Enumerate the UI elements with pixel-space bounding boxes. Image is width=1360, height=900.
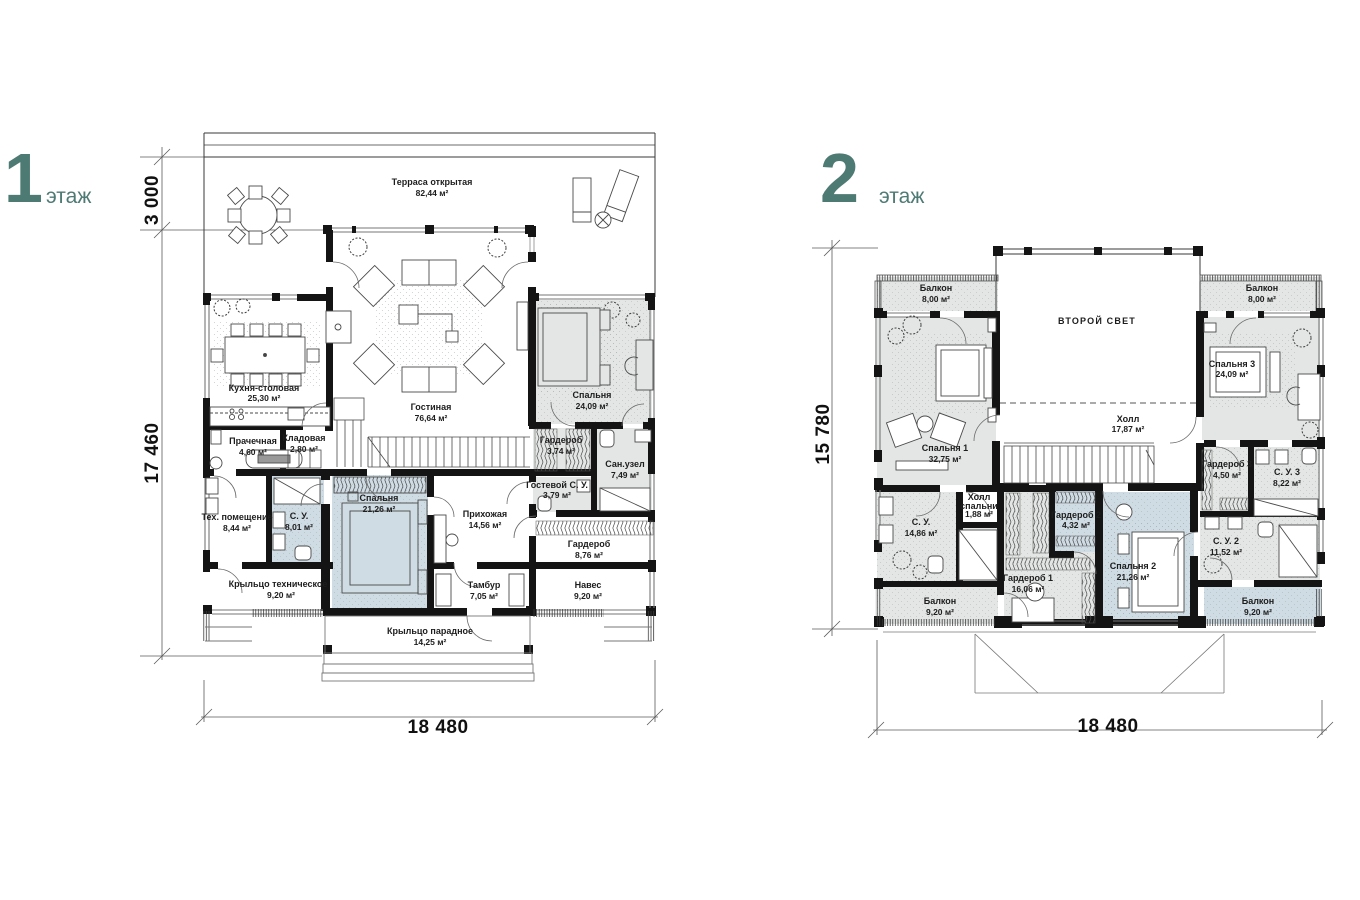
svg-text:Спальня 2: Спальня 2 — [1110, 561, 1156, 571]
svg-text:8,44 м²: 8,44 м² — [223, 523, 251, 533]
svg-text:Гардероб: Гардероб — [568, 539, 611, 549]
svg-text:11,52 м²: 11,52 м² — [1210, 547, 1242, 557]
svg-text:17,87 м²: 17,87 м² — [1112, 424, 1145, 434]
svg-text:Прихожая: Прихожая — [463, 509, 507, 519]
svg-text:9,20 м²: 9,20 м² — [1244, 607, 1272, 617]
svg-text:2: 2 — [820, 139, 859, 217]
svg-text:Балкон: Балкон — [920, 283, 953, 293]
svg-text:9,20 м²: 9,20 м² — [574, 591, 602, 601]
svg-text:1,88 м²: 1,88 м² — [965, 509, 993, 519]
svg-text:2,80 м²: 2,80 м² — [290, 444, 318, 454]
svg-text:14,56 м²: 14,56 м² — [469, 520, 502, 530]
svg-text:Гостиная: Гостиная — [411, 402, 452, 412]
svg-text:17 460: 17 460 — [142, 422, 163, 483]
svg-text:76,64 м²: 76,64 м² — [415, 413, 448, 423]
svg-text:8,01 м²: 8,01 м² — [285, 522, 313, 532]
svg-text:3,79 м²: 3,79 м² — [543, 490, 571, 500]
svg-text:7,05 м²: 7,05 м² — [470, 591, 498, 601]
svg-text:15 780: 15 780 — [813, 403, 834, 464]
svg-text:21,26 м²: 21,26 м² — [1117, 572, 1150, 582]
svg-text:этаж: этаж — [46, 185, 91, 208]
svg-text:8,76 м²: 8,76 м² — [575, 550, 603, 560]
svg-text:18 480: 18 480 — [1077, 716, 1138, 737]
svg-text:Навес: Навес — [575, 580, 602, 590]
svg-text:Гостевой С. У.: Гостевой С. У. — [526, 480, 588, 490]
svg-text:Гардероб 3: Гардероб 3 — [1202, 459, 1252, 469]
svg-text:Спальня: Спальня — [360, 493, 399, 503]
svg-text:1: 1 — [4, 139, 43, 217]
svg-text:Прачечная: Прачечная — [229, 436, 277, 446]
svg-text:24,09 м²: 24,09 м² — [1216, 369, 1249, 379]
svg-text:9,20 м²: 9,20 м² — [926, 607, 954, 617]
svg-text:16,06 м²: 16,06 м² — [1012, 584, 1045, 594]
svg-text:8,00 м²: 8,00 м² — [922, 294, 950, 304]
svg-text:Тех. помещение: Тех. помещение — [202, 512, 273, 522]
svg-text:С. У. 3: С. У. 3 — [1274, 467, 1300, 477]
svg-text:Балкон: Балкон — [924, 596, 957, 606]
svg-text:7,49 м²: 7,49 м² — [611, 470, 639, 480]
svg-text:21,26 м²: 21,26 м² — [363, 504, 396, 514]
svg-text:32,75 м²: 32,75 м² — [929, 454, 962, 464]
svg-text:С. У.: С. У. — [290, 511, 308, 521]
svg-text:3,74 м²: 3,74 м² — [547, 446, 575, 456]
svg-text:Балкон: Балкон — [1242, 596, 1275, 606]
svg-text:Тамбур: Тамбур — [468, 580, 501, 590]
svg-text:3 000: 3 000 — [142, 175, 163, 225]
svg-text:Спальня 3: Спальня 3 — [1209, 359, 1255, 369]
svg-text:82,44 м²: 82,44 м² — [416, 188, 449, 198]
svg-text:ВТОРОЙ СВЕТ: ВТОРОЙ СВЕТ — [1058, 315, 1136, 326]
svg-text:Гардероб 2: Гардероб 2 — [1051, 510, 1101, 520]
svg-text:25,30 м²: 25,30 м² — [248, 393, 281, 403]
svg-text:24,09 м²: 24,09 м² — [576, 401, 609, 411]
svg-text:14,86 м²: 14,86 м² — [905, 528, 938, 538]
svg-text:С. У. 2: С. У. 2 — [1213, 536, 1239, 546]
svg-text:Кухня-столовая: Кухня-столовая — [229, 383, 300, 393]
svg-text:этаж: этаж — [879, 185, 924, 208]
svg-text:18 480: 18 480 — [407, 717, 468, 738]
svg-text:Терраса открытая: Терраса открытая — [392, 177, 473, 187]
svg-text:4,50 м²: 4,50 м² — [1213, 470, 1241, 480]
svg-text:С. У.: С. У. — [912, 517, 930, 527]
svg-text:4,60 м²: 4,60 м² — [239, 447, 267, 457]
svg-text:Холл: Холл — [1117, 414, 1140, 424]
svg-text:4,32 м²: 4,32 м² — [1062, 520, 1090, 530]
svg-text:Кладовая: Кладовая — [282, 433, 325, 443]
svg-text:9,20 м²: 9,20 м² — [267, 590, 295, 600]
svg-text:Сан.узел: Сан.узел — [605, 459, 645, 469]
svg-text:14,25 м²: 14,25 м² — [414, 637, 447, 647]
svg-text:8,22 м²: 8,22 м² — [1273, 478, 1301, 488]
svg-text:Крыльцо парадное: Крыльцо парадное — [387, 626, 473, 636]
svg-text:Балкон: Балкон — [1246, 283, 1279, 293]
svg-text:Спальня 1: Спальня 1 — [922, 443, 968, 453]
svg-text:Гардероб: Гардероб — [540, 435, 583, 445]
svg-text:Спальня: Спальня — [573, 390, 612, 400]
svg-text:Гардероб 1: Гардероб 1 — [1003, 573, 1053, 583]
svg-text:8,00 м²: 8,00 м² — [1248, 294, 1276, 304]
svg-text:Крыльцо техническое: Крыльцо техническое — [229, 579, 328, 589]
